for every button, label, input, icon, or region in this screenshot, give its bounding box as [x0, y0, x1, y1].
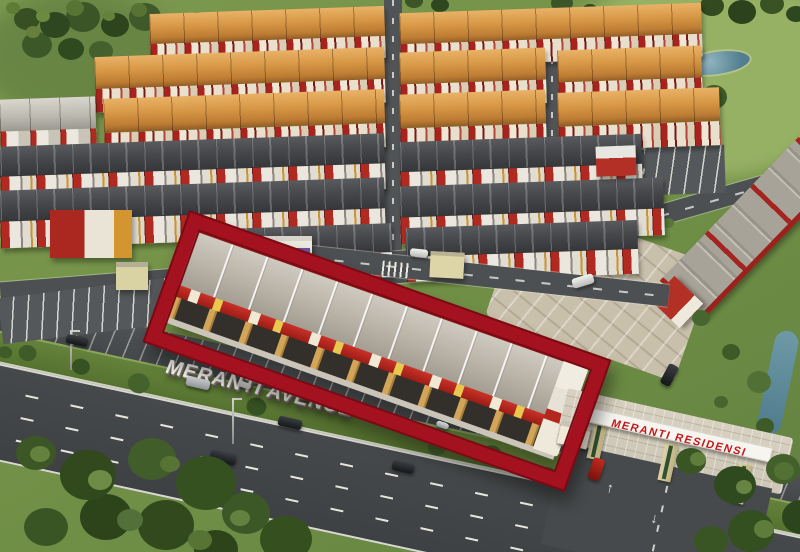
trees-right-slope	[692, 310, 710, 326]
trees-top-left-light	[6, 2, 20, 14]
median-trees	[17, 343, 38, 362]
corner-shop-building	[595, 145, 636, 176]
utility-kiosk	[429, 251, 464, 279]
trees-top-middle	[405, 0, 423, 8]
street-light	[232, 398, 234, 444]
down-arrow-marking: ↓	[649, 509, 659, 526]
trees-bottom-left-light	[30, 446, 50, 462]
stream	[755, 329, 800, 437]
zebra-crossing	[381, 261, 410, 279]
masterplan-render: MERANTI AVENUE ↑ ↓ MERANTI RESIDENSI	[0, 0, 800, 552]
facility-building	[50, 210, 132, 258]
guard-kiosk	[116, 262, 148, 290]
up-arrow-marking: ↑	[605, 479, 615, 496]
trees-entrance-right-light	[690, 452, 706, 466]
